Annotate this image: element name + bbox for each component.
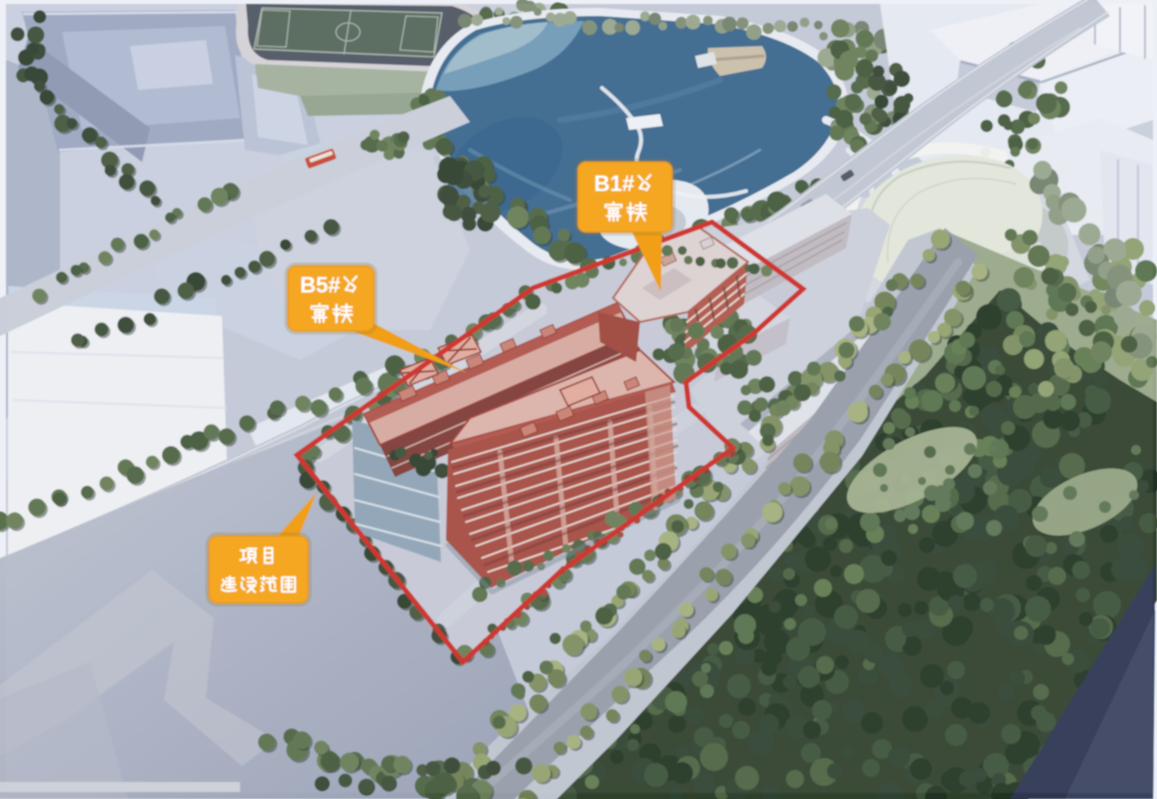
svg-text:B1#: B1# (594, 171, 634, 196)
svg-text:B5#: B5# (300, 273, 340, 298)
